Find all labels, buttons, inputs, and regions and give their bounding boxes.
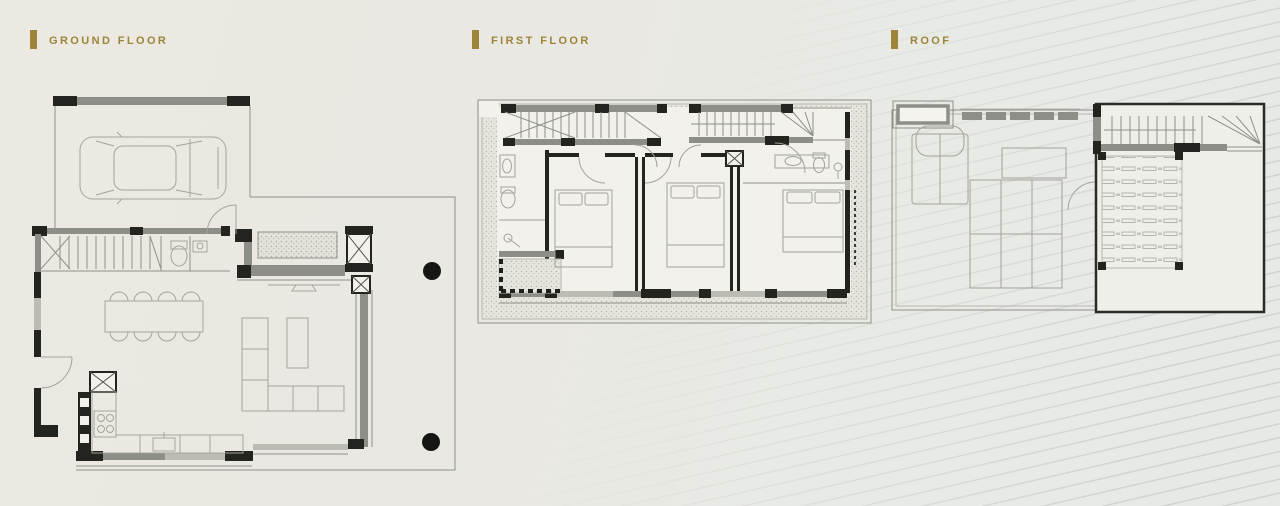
tv-console — [268, 285, 340, 291]
tree-dot — [423, 262, 441, 280]
ground-floor-label: GROUND FLOOR — [49, 35, 168, 47]
roof-plan — [890, 98, 1272, 318]
pergola-slats — [1098, 152, 1183, 270]
roof-slats-row — [960, 109, 1080, 120]
coffee-table — [287, 318, 308, 368]
floor-plans-page: { "page": { "background_left": "#ebe8e1"… — [0, 0, 1280, 506]
ground-floor-header: GROUND FLOOR — [30, 30, 168, 49]
carport — [53, 96, 250, 228]
shaft-box — [726, 151, 743, 166]
daybed-grid — [970, 180, 1062, 288]
roof-terrace-left — [892, 101, 1112, 310]
accent-bar — [30, 30, 37, 49]
entry-planter — [258, 232, 337, 258]
roof-label: ROOF — [910, 35, 951, 47]
tree-dot — [422, 433, 440, 451]
shaft-column — [345, 226, 373, 293]
stove — [94, 411, 116, 437]
dining-table — [105, 292, 203, 341]
first-floor-label: FIRST FLOOR — [491, 35, 591, 47]
ground-floor-plan — [30, 95, 460, 475]
first-floor-header: FIRST FLOOR — [472, 30, 591, 49]
kitchen — [78, 372, 243, 458]
skylight-box — [893, 101, 953, 128]
outdoor-sofa — [912, 126, 968, 204]
sofa — [242, 318, 344, 411]
garden-trees — [422, 262, 441, 451]
terrace-left — [499, 250, 564, 293]
roof-stair-block — [1093, 104, 1264, 312]
first-floor-plan — [475, 95, 875, 327]
wc — [171, 241, 207, 266]
car-drawing — [80, 132, 226, 204]
side-door — [41, 357, 72, 388]
terrace-door — [1068, 182, 1096, 210]
accent-bar — [891, 30, 898, 49]
accent-bar — [472, 30, 479, 49]
roof-header: ROOF — [891, 30, 951, 49]
outdoor-table — [1002, 148, 1066, 178]
